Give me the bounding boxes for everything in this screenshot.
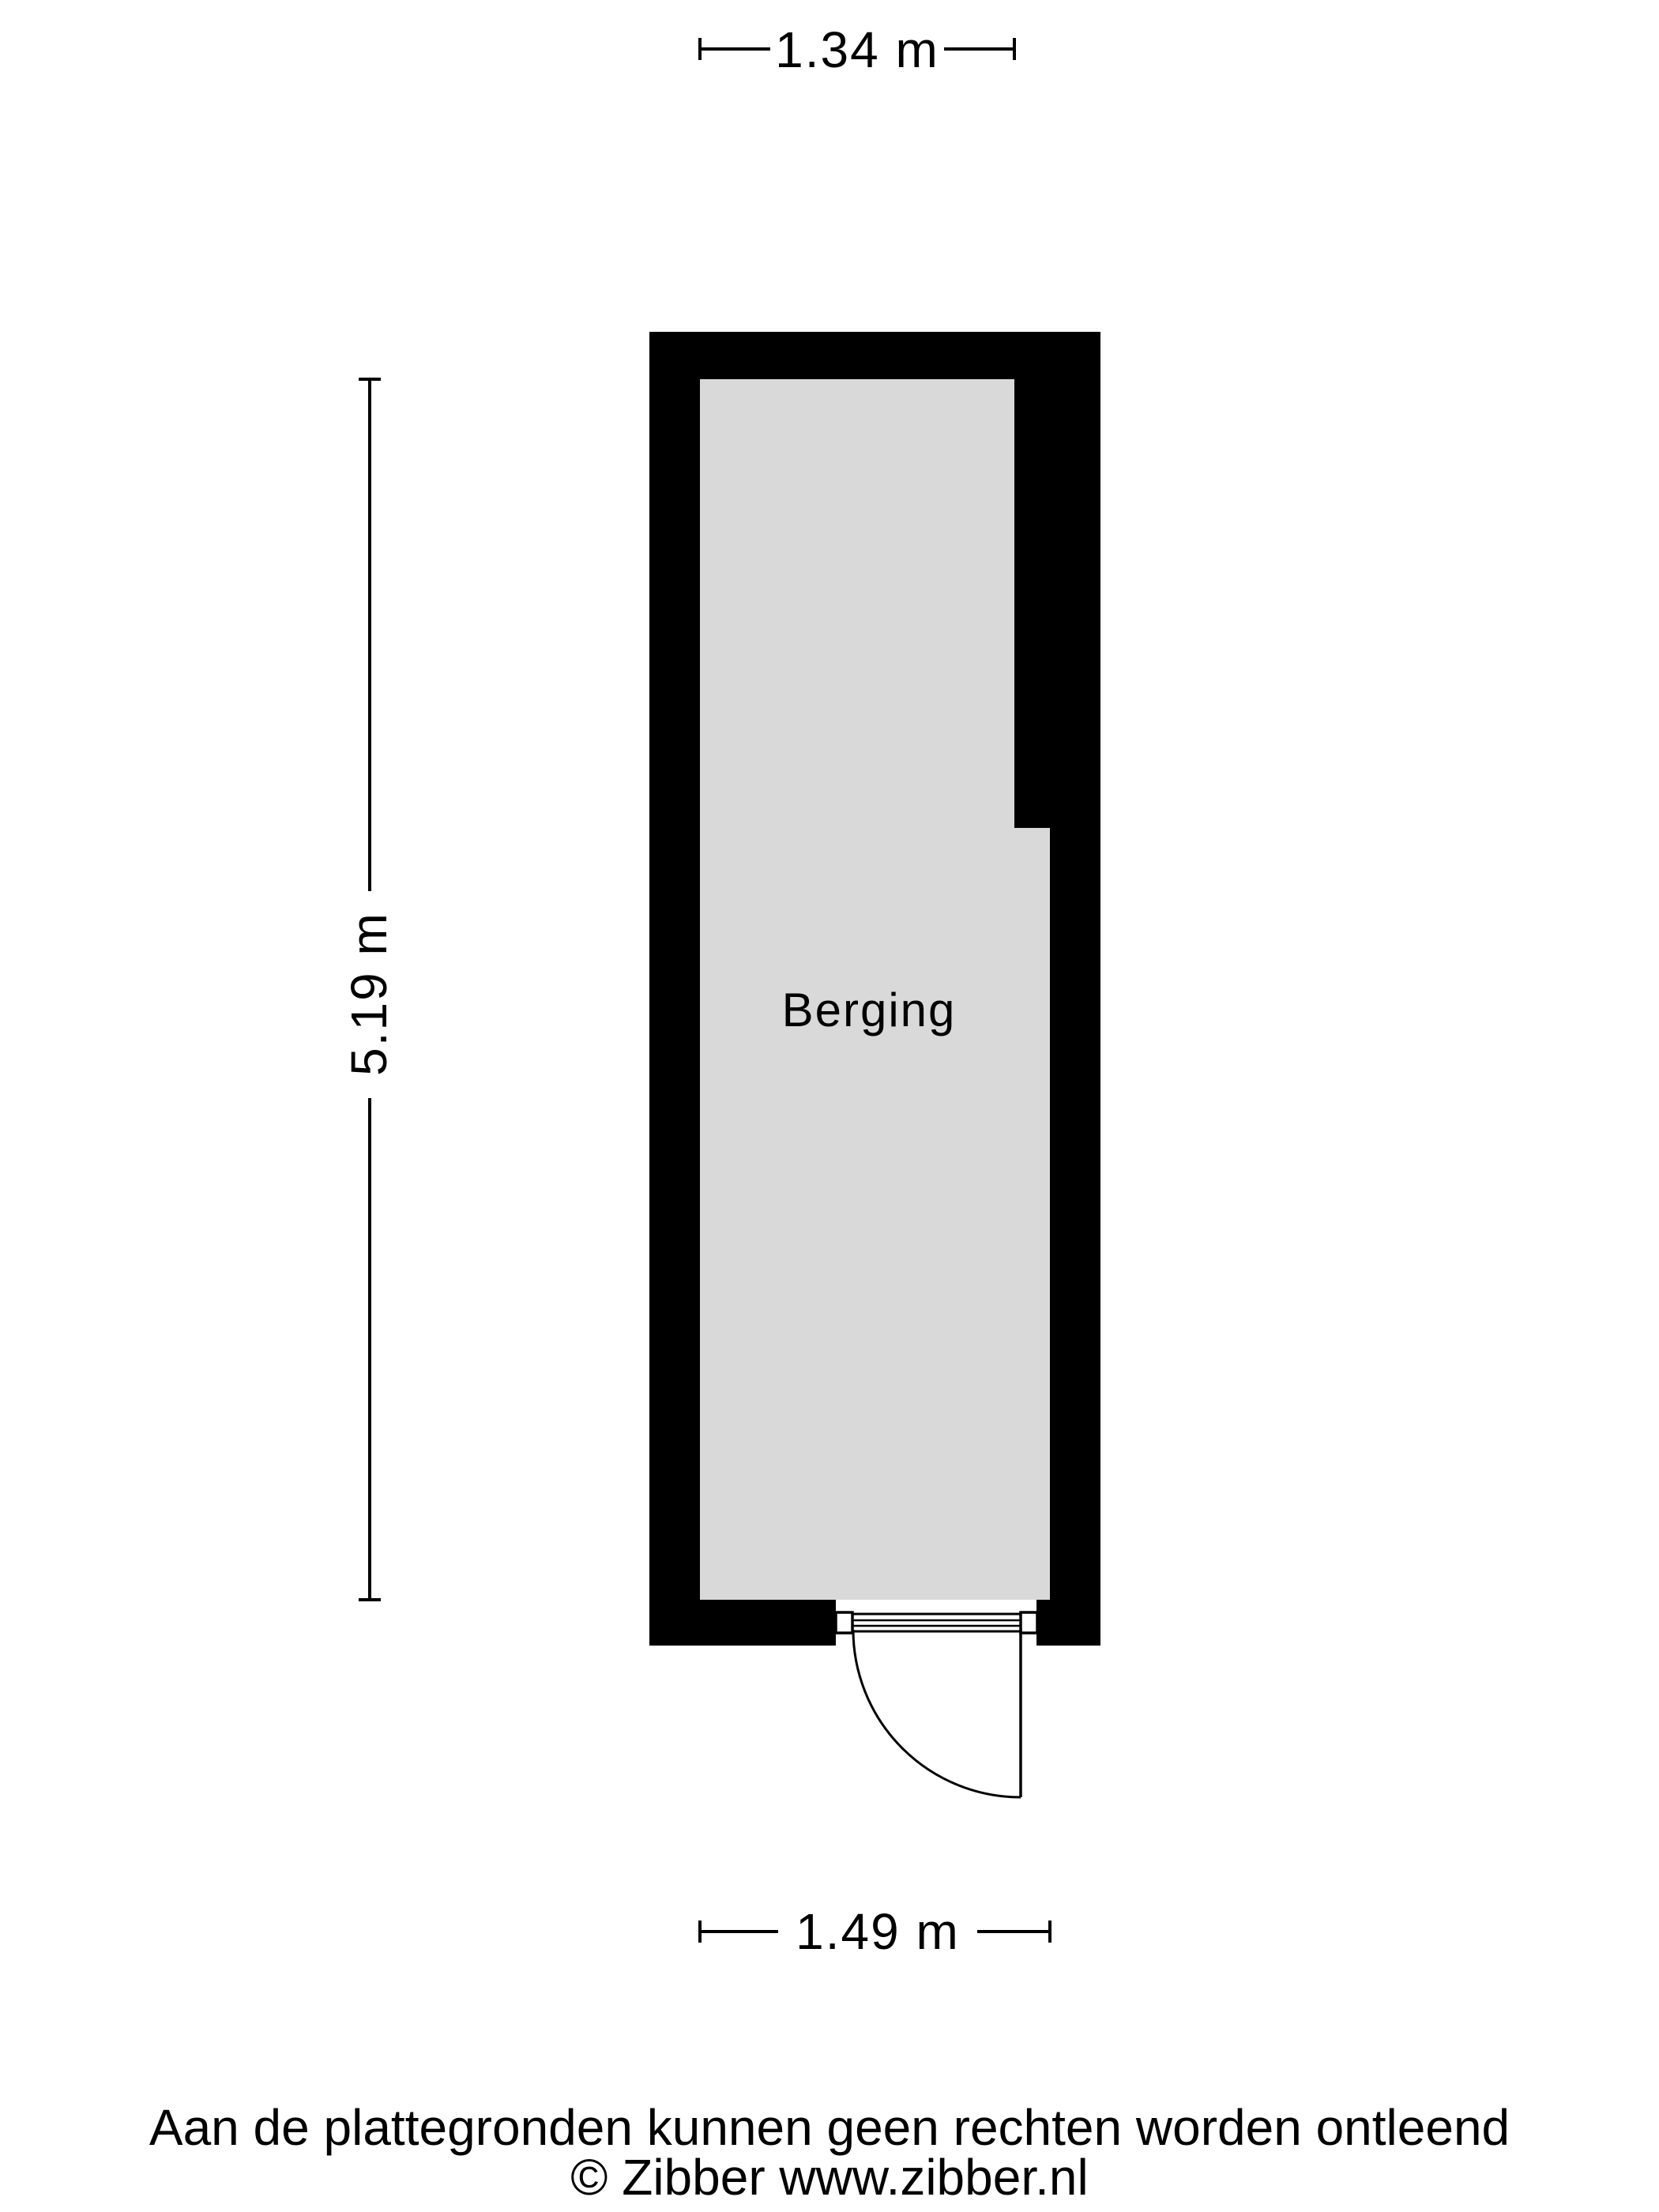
dim-bottom-label: 1.49 m bbox=[796, 1903, 960, 1960]
door-post-left bbox=[836, 1612, 852, 1633]
dim-top-label: 1.34 m bbox=[775, 21, 939, 78]
dim-left-label: 5.19 m bbox=[340, 912, 397, 1076]
floorplan-canvas: Berging 1.34 m 5.19 m 1.49 m Aan de plat… bbox=[0, 0, 1659, 2212]
door-threshold bbox=[852, 1614, 1021, 1631]
footer-copyright: © Zibber www.zibber.nl bbox=[570, 2149, 1088, 2206]
footer-disclaimer: Aan de plattegronden kunnen geen rechten… bbox=[149, 2099, 1510, 2156]
door-swing-arc bbox=[853, 1630, 1021, 1797]
room-label: Berging bbox=[782, 984, 957, 1036]
floorplan-page: Berging 1.34 m 5.19 m 1.49 m Aan de plat… bbox=[0, 0, 1659, 2212]
door-post-right bbox=[1021, 1612, 1037, 1633]
